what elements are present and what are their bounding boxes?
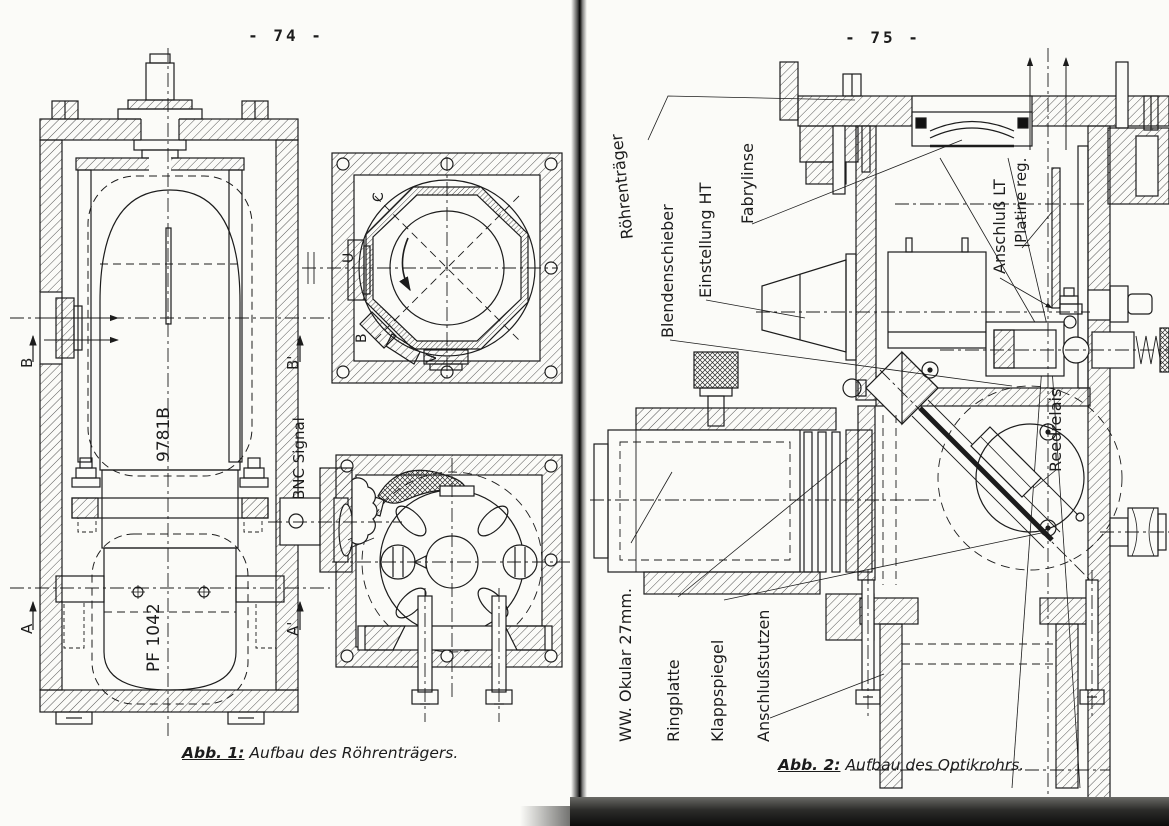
- figure1-caption-text: Aufbau des Röhrenträgers.: [249, 744, 458, 762]
- label-klappspiegel: Klappspiegel: [710, 640, 726, 742]
- book-scan: - 74 - B B' A A' 9781B PF 1042 BNC Signa…: [0, 0, 1169, 826]
- figure1-main-section: [39, 54, 298, 724]
- bnc-signal-label: BNC Signal: [292, 417, 307, 500]
- label-okular: WW. Okular 27mm.: [618, 588, 634, 742]
- figure2-caption-label: Abb. 2:: [778, 756, 840, 774]
- section-label-a-prime: A': [286, 622, 301, 636]
- figure1-caption: Abb. 1: Aufbau des Röhrenträgers.: [182, 744, 458, 762]
- page-number-left: - 74 -: [238, 26, 334, 45]
- tube-code-label: 9781B: [156, 407, 173, 462]
- tube-model-label: PF 1042: [146, 603, 163, 672]
- octagon-label-c: C: [372, 192, 386, 202]
- label-anschlussstutzen: Anschlußstutzen: [756, 610, 772, 742]
- label-fabrylinse: Fabrylinse: [740, 143, 756, 224]
- label-einstellung-ht: Einstellung HT: [698, 183, 714, 298]
- scan-bottom-shadow: [570, 797, 1169, 826]
- book-gutter-shadow: [571, 0, 587, 826]
- label-anschluss-lt: Anschluß LT: [992, 179, 1008, 274]
- octagon-label-v: V: [425, 353, 439, 363]
- figure1-caption-label: Abb. 1:: [182, 744, 244, 762]
- section-label-b: B: [20, 358, 35, 368]
- figure2-caption: Abb. 2: Aufbau des Optikrohrs.: [778, 756, 1024, 774]
- label-reedrelais: Reedrelais: [1048, 389, 1064, 472]
- label-blendenschieber: Blendenschieber: [660, 204, 676, 338]
- section-label-a: A: [20, 624, 35, 634]
- section-label-b-prime: B': [286, 356, 301, 370]
- octagon-label-u: U: [342, 253, 356, 263]
- octagon-label-b: B: [355, 333, 369, 343]
- figure2-caption-text: Aufbau des Optikrohrs.: [845, 756, 1024, 774]
- page-number-right: - 75 -: [838, 28, 928, 47]
- label-ringplatte: Ringplatte: [666, 659, 682, 742]
- label-platine-reg: |Platine reg.: [1014, 158, 1029, 248]
